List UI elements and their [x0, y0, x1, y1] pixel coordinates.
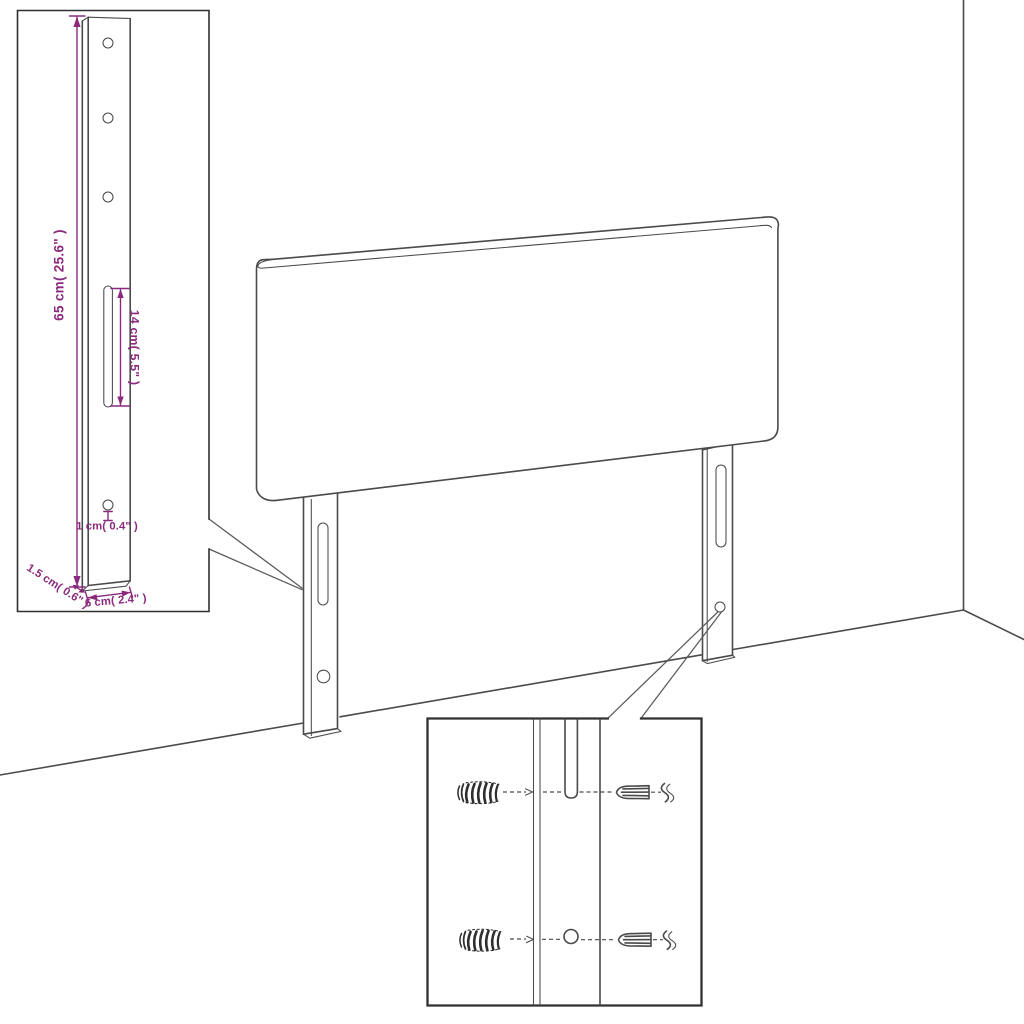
dim-hole-label: 1 cm( 0.4" ) [76, 521, 138, 533]
callout-right-left [608, 612, 719, 719]
callout-lines [209, 519, 722, 718]
strip-hole [564, 930, 578, 944]
leader-lines [503, 789, 614, 943]
dim-width: 6 cm( 2.4" ) [84, 587, 147, 610]
diagram-canvas: 65 cm( 25.6" ) 14 cm( 5.5" ) 1 cm( 0.4" … [0, 0, 1024, 1024]
leg-detail-inset: 65 cm( 25.6" ) 14 cm( 5.5" ) 1 cm( 0.4" … [18, 11, 210, 612]
mounting-detail-inset [428, 719, 702, 1006]
diagram-page: 65 cm( 25.6" ) 14 cm( 5.5" ) 1 cm( 0.4" … [0, 0, 1024, 1024]
callout-left-upper [209, 519, 303, 589]
screw-lower-icon [619, 931, 676, 950]
leg-strip-closeup [534, 719, 601, 1005]
wall-plug-lower-icon [460, 929, 501, 951]
bracket-hole-2 [103, 113, 113, 123]
floor-line-near-wall [733, 610, 964, 650]
panel-outline [257, 217, 779, 501]
right-leg-slot [716, 465, 726, 547]
strip-slot [565, 719, 577, 798]
floor-line-left [0, 723, 304, 775]
wall-plug-upper-icon [458, 782, 499, 804]
bracket-hole-1 [103, 38, 113, 48]
headboard-panel [257, 217, 779, 501]
dim-hole: 1 cm( 0.4" ) [76, 512, 138, 533]
dim-height: 65 cm( 25.6" ) [52, 16, 86, 587]
floor-line-middle [340, 655, 703, 717]
screw-upper-icon [617, 784, 674, 803]
dim-slot: 14 cm( 5.5" ) [111, 289, 142, 407]
leader-arrow-lower [527, 936, 534, 942]
leader-arrow-upper [526, 789, 533, 795]
dim-height-label: 65 cm( 25.6" ) [52, 229, 67, 321]
left-mounting-leg [304, 487, 342, 738]
left-leg-hole [317, 670, 330, 683]
floor-line-right [964, 610, 1024, 640]
bracket-lower-hole [103, 500, 113, 510]
right-leg-hole [715, 602, 725, 612]
bracket-slot [104, 286, 113, 407]
callout-right-right [641, 612, 722, 719]
dim-width-label: 6 cm( 2.4" ) [84, 592, 147, 609]
dim-slot-label: 14 cm( 5.5" ) [128, 310, 142, 385]
bracket-hole-3 [103, 192, 113, 202]
bracket-drawing [82, 17, 130, 591]
left-leg-slot [318, 523, 328, 605]
callout-left-lower [209, 549, 303, 590]
